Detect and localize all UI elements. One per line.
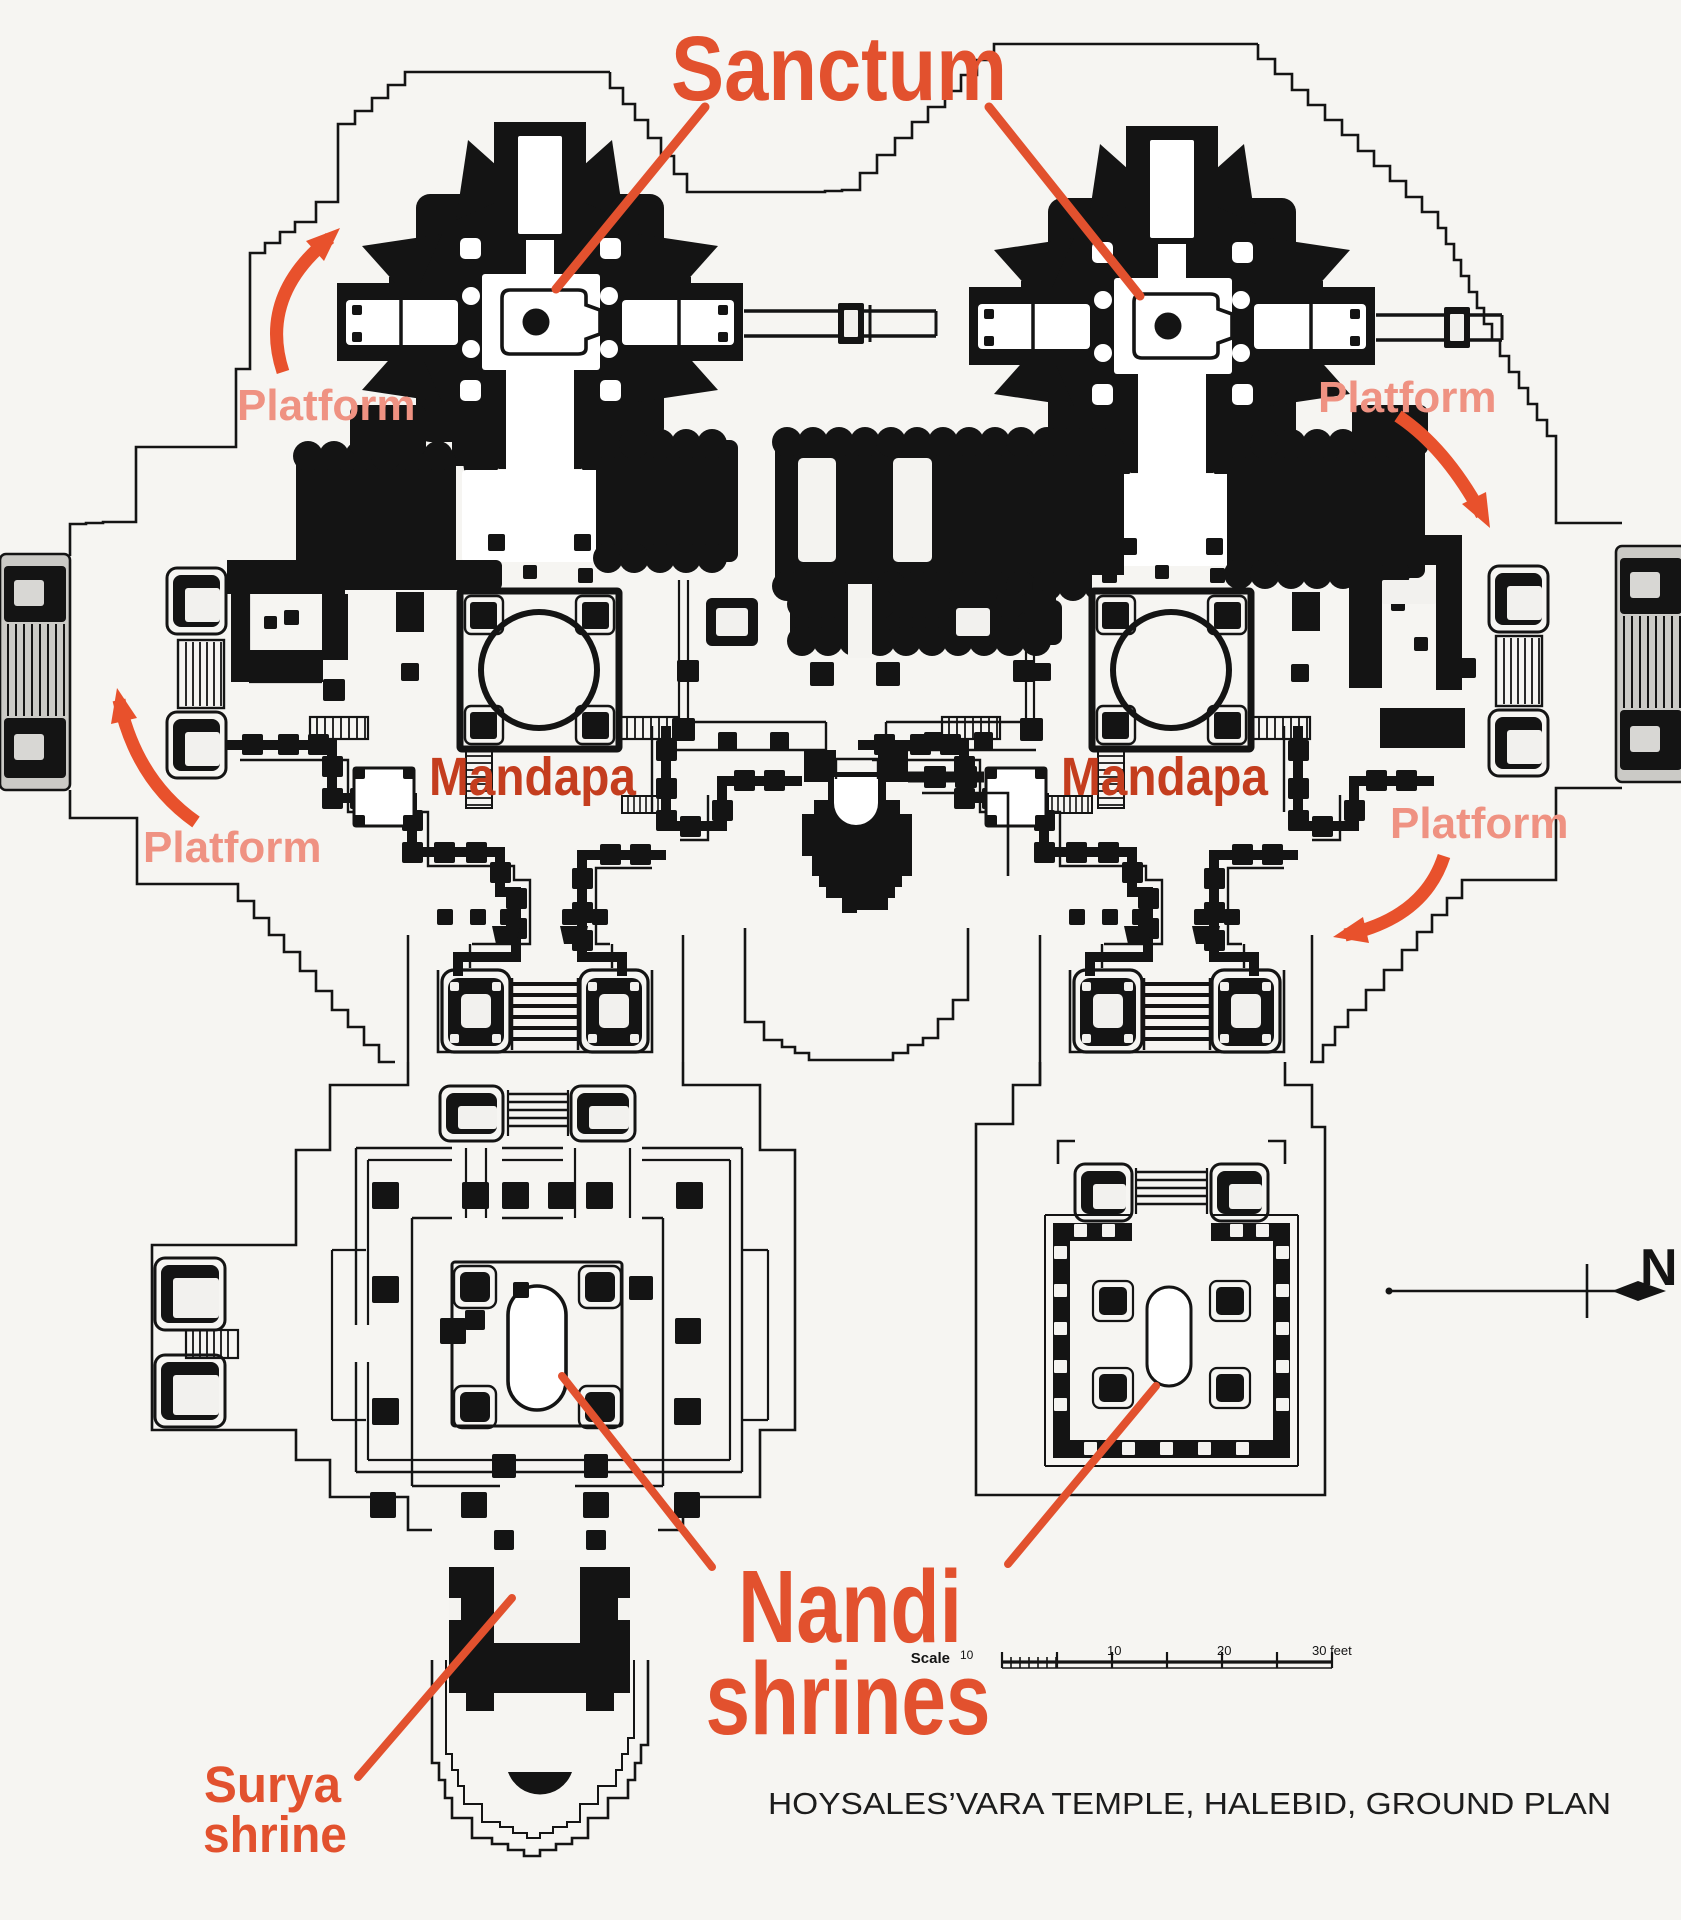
svg-text:Platform: Platform <box>1390 799 1568 848</box>
svg-text:Surya: Surya <box>204 1756 342 1813</box>
svg-text:30 feet: 30 feet <box>1312 1643 1352 1658</box>
svg-text:Platform: Platform <box>237 381 415 430</box>
svg-text:N: N <box>1640 1239 1678 1297</box>
svg-text:HOYSALES’VARA TEMPLE, HALEBID: HOYSALES’VARA TEMPLE, HALEBID, GROUND PL… <box>768 1786 1611 1821</box>
svg-text:shrines: shrines <box>706 1641 991 1756</box>
svg-text:10: 10 <box>1107 1643 1121 1658</box>
svg-text:Sanctum: Sanctum <box>671 18 1007 120</box>
svg-text:20: 20 <box>1217 1643 1231 1658</box>
svg-text:Mandapa: Mandapa <box>1061 747 1269 807</box>
svg-text:shrine: shrine <box>203 1806 347 1863</box>
svg-text:Mandapa: Mandapa <box>429 747 637 807</box>
svg-text:Platform: Platform <box>143 823 321 872</box>
